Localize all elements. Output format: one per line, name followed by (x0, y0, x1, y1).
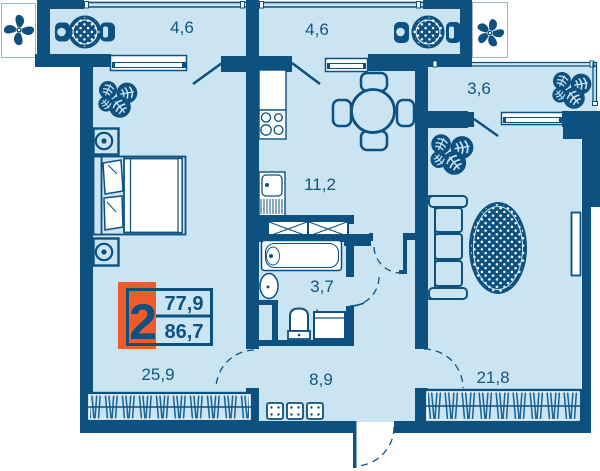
svg-text:8,9: 8,9 (309, 370, 333, 389)
svg-text:3,7: 3,7 (310, 277, 334, 296)
svg-text:86,7: 86,7 (165, 321, 204, 343)
svg-text:4,6: 4,6 (305, 20, 329, 39)
svg-text:4,6: 4,6 (170, 18, 194, 37)
svg-text:25,9: 25,9 (141, 365, 174, 384)
svg-text:3,6: 3,6 (467, 79, 491, 98)
svg-text:77,9: 77,9 (165, 293, 204, 315)
svg-text:21,8: 21,8 (476, 368, 509, 387)
svg-text:2: 2 (129, 294, 157, 350)
svg-text:11,2: 11,2 (304, 175, 336, 194)
